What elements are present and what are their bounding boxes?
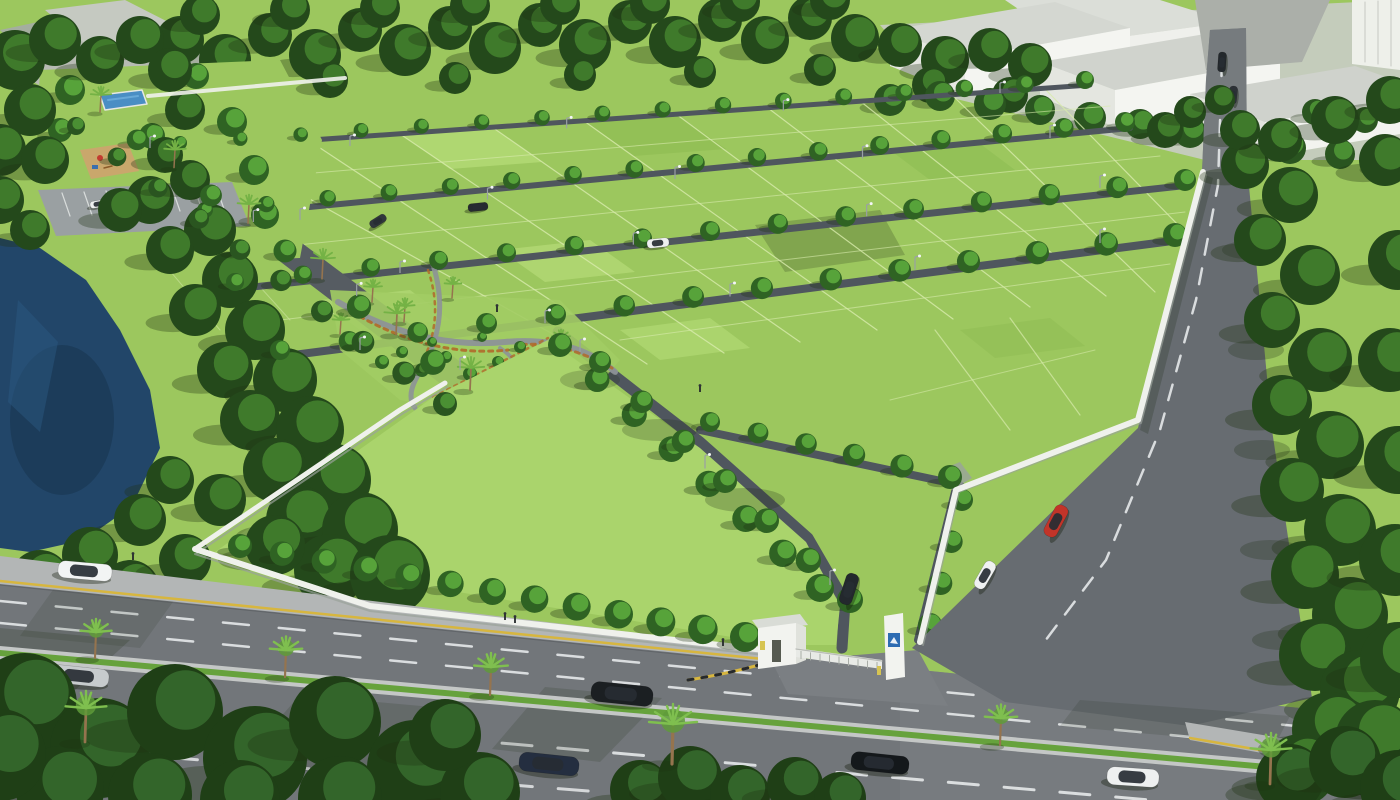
- aerial-render-viewport: [0, 0, 1400, 800]
- tall-building: [1352, 0, 1400, 70]
- aerial-site-render: [0, 0, 1400, 800]
- gate-cabin-door: [772, 640, 781, 662]
